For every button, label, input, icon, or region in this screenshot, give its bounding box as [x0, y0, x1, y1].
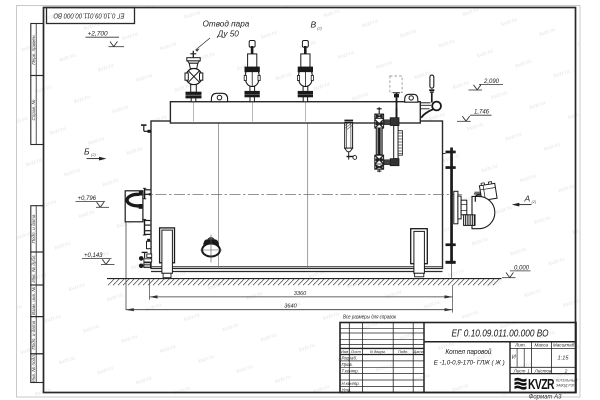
- svg-text:2: 2: [564, 368, 568, 373]
- svg-text:Масса: Масса: [535, 343, 549, 348]
- svg-text:Ду 50: Ду 50: [217, 30, 240, 39]
- svg-text:КОТЕЛЬНЫЙ: КОТЕЛЬНЫЙ: [556, 379, 578, 383]
- svg-text:Все размеры для справок: Все размеры для справок: [343, 315, 396, 321]
- svg-text:ЗАВОД РЭП: ЗАВОД РЭП: [556, 384, 576, 388]
- svg-text:2,090: 2,090: [483, 79, 500, 85]
- svg-text:1:15: 1:15: [558, 356, 570, 362]
- svg-text:KVZR: KVZR: [528, 377, 555, 393]
- svg-text:Н.контр.: Н.контр.: [342, 381, 360, 386]
- svg-text:Формат А3: Формат А3: [529, 395, 562, 400]
- svg-text:1: 1: [527, 368, 530, 373]
- svg-text:(2): (2): [317, 26, 323, 31]
- svg-text:Е -1,0-0,9-170- ГЛЖ ( Ж ): Е -1,0-0,9-170- ГЛЖ ( Ж ): [434, 360, 505, 367]
- svg-text:Справ. №: Справ. №: [31, 100, 36, 121]
- svg-text:ЕГ 0.10.09.011.00.000 ВО: ЕГ 0.10.09.011.00.000 ВО: [53, 12, 125, 19]
- svg-text:Инв. № дубл.: Инв. № дубл.: [31, 254, 36, 282]
- svg-text:Листов: Листов: [534, 368, 552, 373]
- svg-text:Дата: Дата: [412, 349, 424, 354]
- svg-text:Лист: Лист: [350, 349, 362, 354]
- svg-text:3360: 3360: [294, 291, 307, 297]
- svg-text:Т.контр.: Т.контр.: [342, 368, 359, 373]
- svg-text:ЕГ 0.10.09.011.00.000 ВО: ЕГ 0.10.09.011.00.000 ВО: [452, 328, 549, 340]
- svg-text:Масштаб: Масштаб: [553, 343, 575, 348]
- svg-text:Разраб.: Разраб.: [342, 356, 358, 361]
- svg-text:3640: 3640: [284, 304, 297, 310]
- svg-text:В: В: [311, 20, 317, 30]
- svg-text:Перв. примен.: Перв. примен.: [31, 34, 36, 65]
- svg-text:Отвод пара: Отвод пара: [203, 20, 250, 29]
- svg-text:(2): (2): [532, 199, 538, 204]
- svg-text:Котел паровой: Котел паровой: [445, 347, 491, 356]
- svg-text:Инв. № подл.: Инв. № подл.: [31, 354, 36, 383]
- svg-text:Утв.: Утв.: [342, 388, 352, 393]
- svg-text:Лист: Лист: [513, 368, 526, 373]
- svg-text:(2): (2): [91, 152, 97, 157]
- svg-text:+0,143: +0,143: [84, 253, 103, 259]
- svg-text:Изм: Изм: [341, 349, 349, 354]
- svg-text:0,000: 0,000: [514, 265, 530, 271]
- svg-text:Взам. инв. №: Взам. инв. №: [31, 287, 36, 315]
- svg-text:+0,796: +0,796: [78, 196, 97, 202]
- svg-text:Подп.: Подп.: [398, 349, 408, 354]
- svg-text:Подп. и дата: Подп. и дата: [31, 320, 36, 349]
- svg-text:И: И: [512, 355, 516, 361]
- svg-text:Подп. и дата: Подп. и дата: [31, 214, 36, 243]
- svg-text:А: А: [524, 194, 531, 204]
- svg-text:Пров.: Пров.: [342, 362, 353, 367]
- svg-text:N докум.: N докум.: [370, 349, 386, 354]
- svg-text:Лит.: Лит.: [514, 343, 526, 348]
- svg-text:+2,700: +2,700: [88, 31, 108, 38]
- svg-text:Б: Б: [84, 147, 90, 157]
